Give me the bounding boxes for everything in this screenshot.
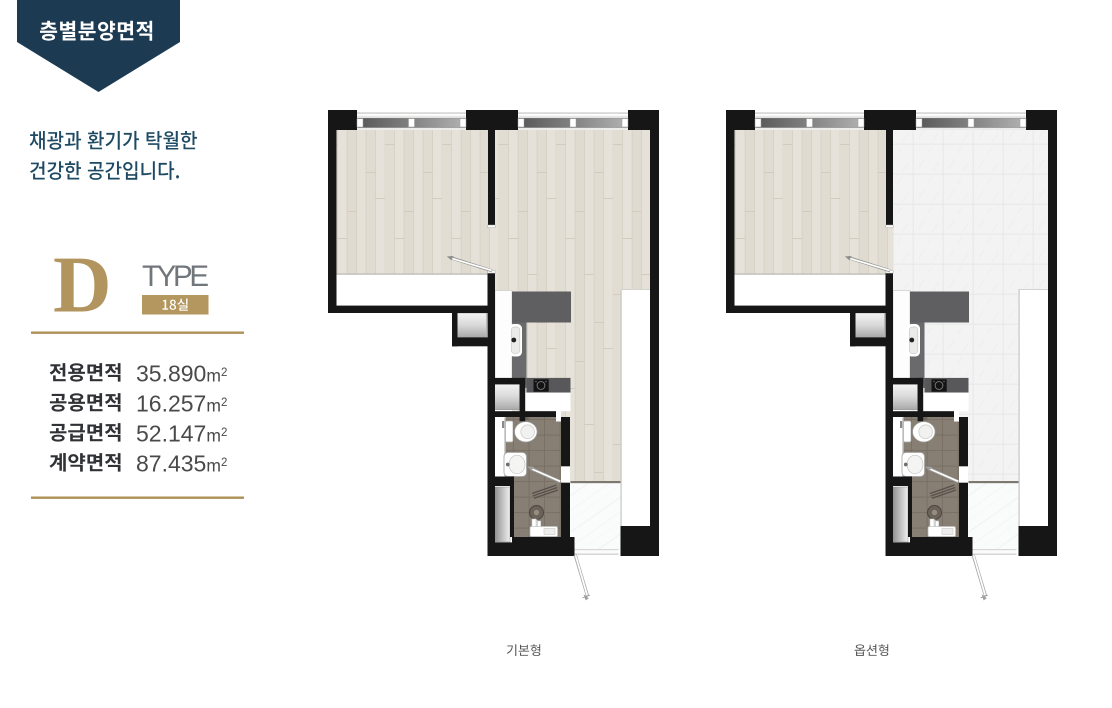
svg-text:D: D bbox=[53, 240, 112, 330]
svg-text:52.147m2: 52.147m2 bbox=[136, 421, 227, 447]
svg-text:87.435m2: 87.435m2 bbox=[136, 451, 227, 477]
svg-text:16.257m2: 16.257m2 bbox=[136, 391, 227, 417]
svg-text:35.890m2: 35.890m2 bbox=[136, 361, 227, 387]
svg-text:TYPE: TYPE bbox=[142, 260, 209, 293]
